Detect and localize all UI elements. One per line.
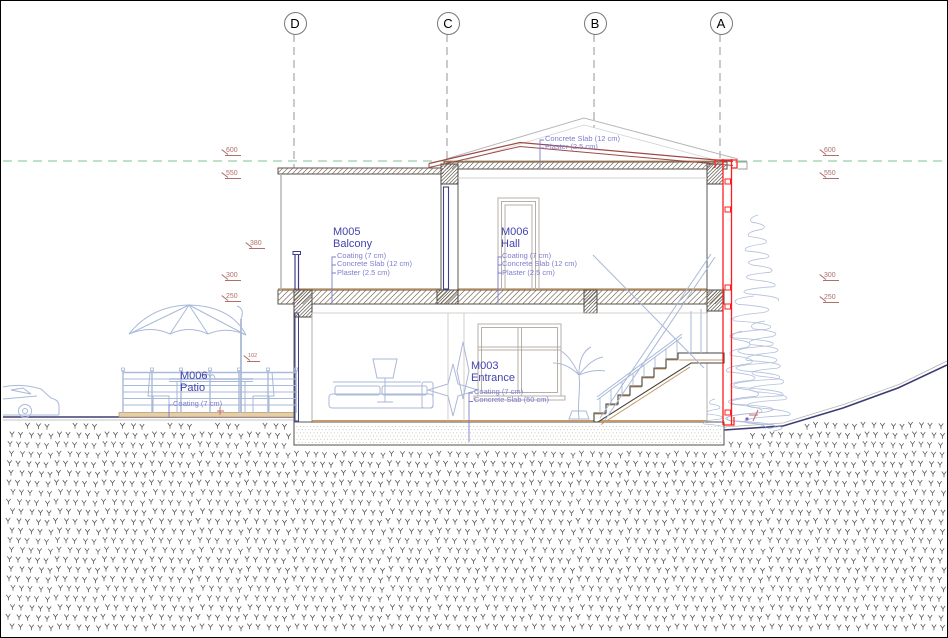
level-marker-right-550[interactable]: 550 [823, 170, 839, 179]
grid-label: D [290, 16, 299, 31]
room-name: Balcony [333, 238, 372, 250]
foundation-slab [294, 422, 724, 445]
grid-label: B [591, 16, 600, 31]
material-callout-patio[interactable]: Coating (7 cm) [173, 400, 222, 408]
room-id: M003 [471, 360, 515, 372]
patio-deck [119, 413, 297, 418]
level-marker-patio[interactable]: 102 [247, 354, 260, 362]
room-tag-balcony[interactable]: M005 Balcony [333, 226, 372, 250]
cad-viewport: D C B A Concrete Slab (12 cm) Plaster (2… [0, 0, 948, 638]
grid-label: C [443, 16, 452, 31]
grid-bubble-d[interactable]: D [284, 12, 307, 35]
sofa [329, 382, 433, 408]
staircase [594, 353, 724, 425]
level-marker-right-300[interactable]: 300 [823, 272, 839, 281]
room-tag-patio[interactable]: M006 Patio [180, 370, 208, 394]
floor-lamp [373, 359, 397, 402]
patio-umbrella [129, 305, 246, 413]
grid-bubble-b[interactable]: B [584, 12, 607, 35]
material-callout-entrance[interactable]: Coating (7 cm) Concrete Slab (50 cm) [474, 388, 549, 405]
room-id: M006 [501, 226, 529, 238]
level-marker-left-550[interactable]: 550 [225, 170, 241, 179]
material-line: Plaster (2.5 cm) [545, 143, 620, 151]
room-id: M006 [180, 370, 208, 382]
grid-bubble-c[interactable]: C [437, 12, 460, 35]
level-marker-right-250[interactable]: 250 [823, 294, 839, 303]
roof-material-callout[interactable]: Concrete Slab (12 cm) Plaster (2.5 cm) [545, 135, 620, 152]
level-marker-left-300[interactable]: 300 [225, 272, 241, 281]
material-line: Concrete Slab (50 cm) [474, 396, 549, 404]
lower-left-wall [294, 304, 312, 422]
room-name: Hall [501, 238, 529, 250]
level-marker-left-250[interactable]: 250 [225, 293, 241, 302]
level-marker-left-600[interactable]: 600 [225, 147, 241, 156]
material-line: Plaster (2.5 cm) [502, 269, 577, 277]
room-tag-entrance[interactable]: M003 Entrance [471, 360, 515, 384]
level-marker-right-600[interactable]: 600 [823, 147, 839, 156]
room-id: M005 [333, 226, 372, 238]
grid-bubble-a[interactable]: A [710, 12, 733, 35]
material-callout-hall[interactable]: Coating (7 cm) Concrete Slab (12 cm) Pla… [502, 252, 577, 277]
material-line: Plaster (2.5 cm) [337, 269, 412, 277]
earth-hatch [6, 422, 946, 631]
section-drawing [1, 1, 948, 638]
material-callout-balcony[interactable]: Coating (7 cm) Concrete Slab (12 cm) Pla… [337, 252, 412, 277]
grid-label: A [717, 16, 726, 31]
selected-wall-overlay[interactable] [717, 156, 737, 428]
room-tag-hall[interactable]: M006 Hall [501, 226, 529, 250]
datum-and-grid-lines [3, 34, 947, 169]
car [3, 385, 59, 417]
material-line: Coating (7 cm) [173, 400, 222, 408]
level-marker-left-380[interactable]: 380 [249, 240, 265, 249]
room-name: Entrance [471, 372, 515, 384]
room-name: Patio [180, 382, 208, 394]
